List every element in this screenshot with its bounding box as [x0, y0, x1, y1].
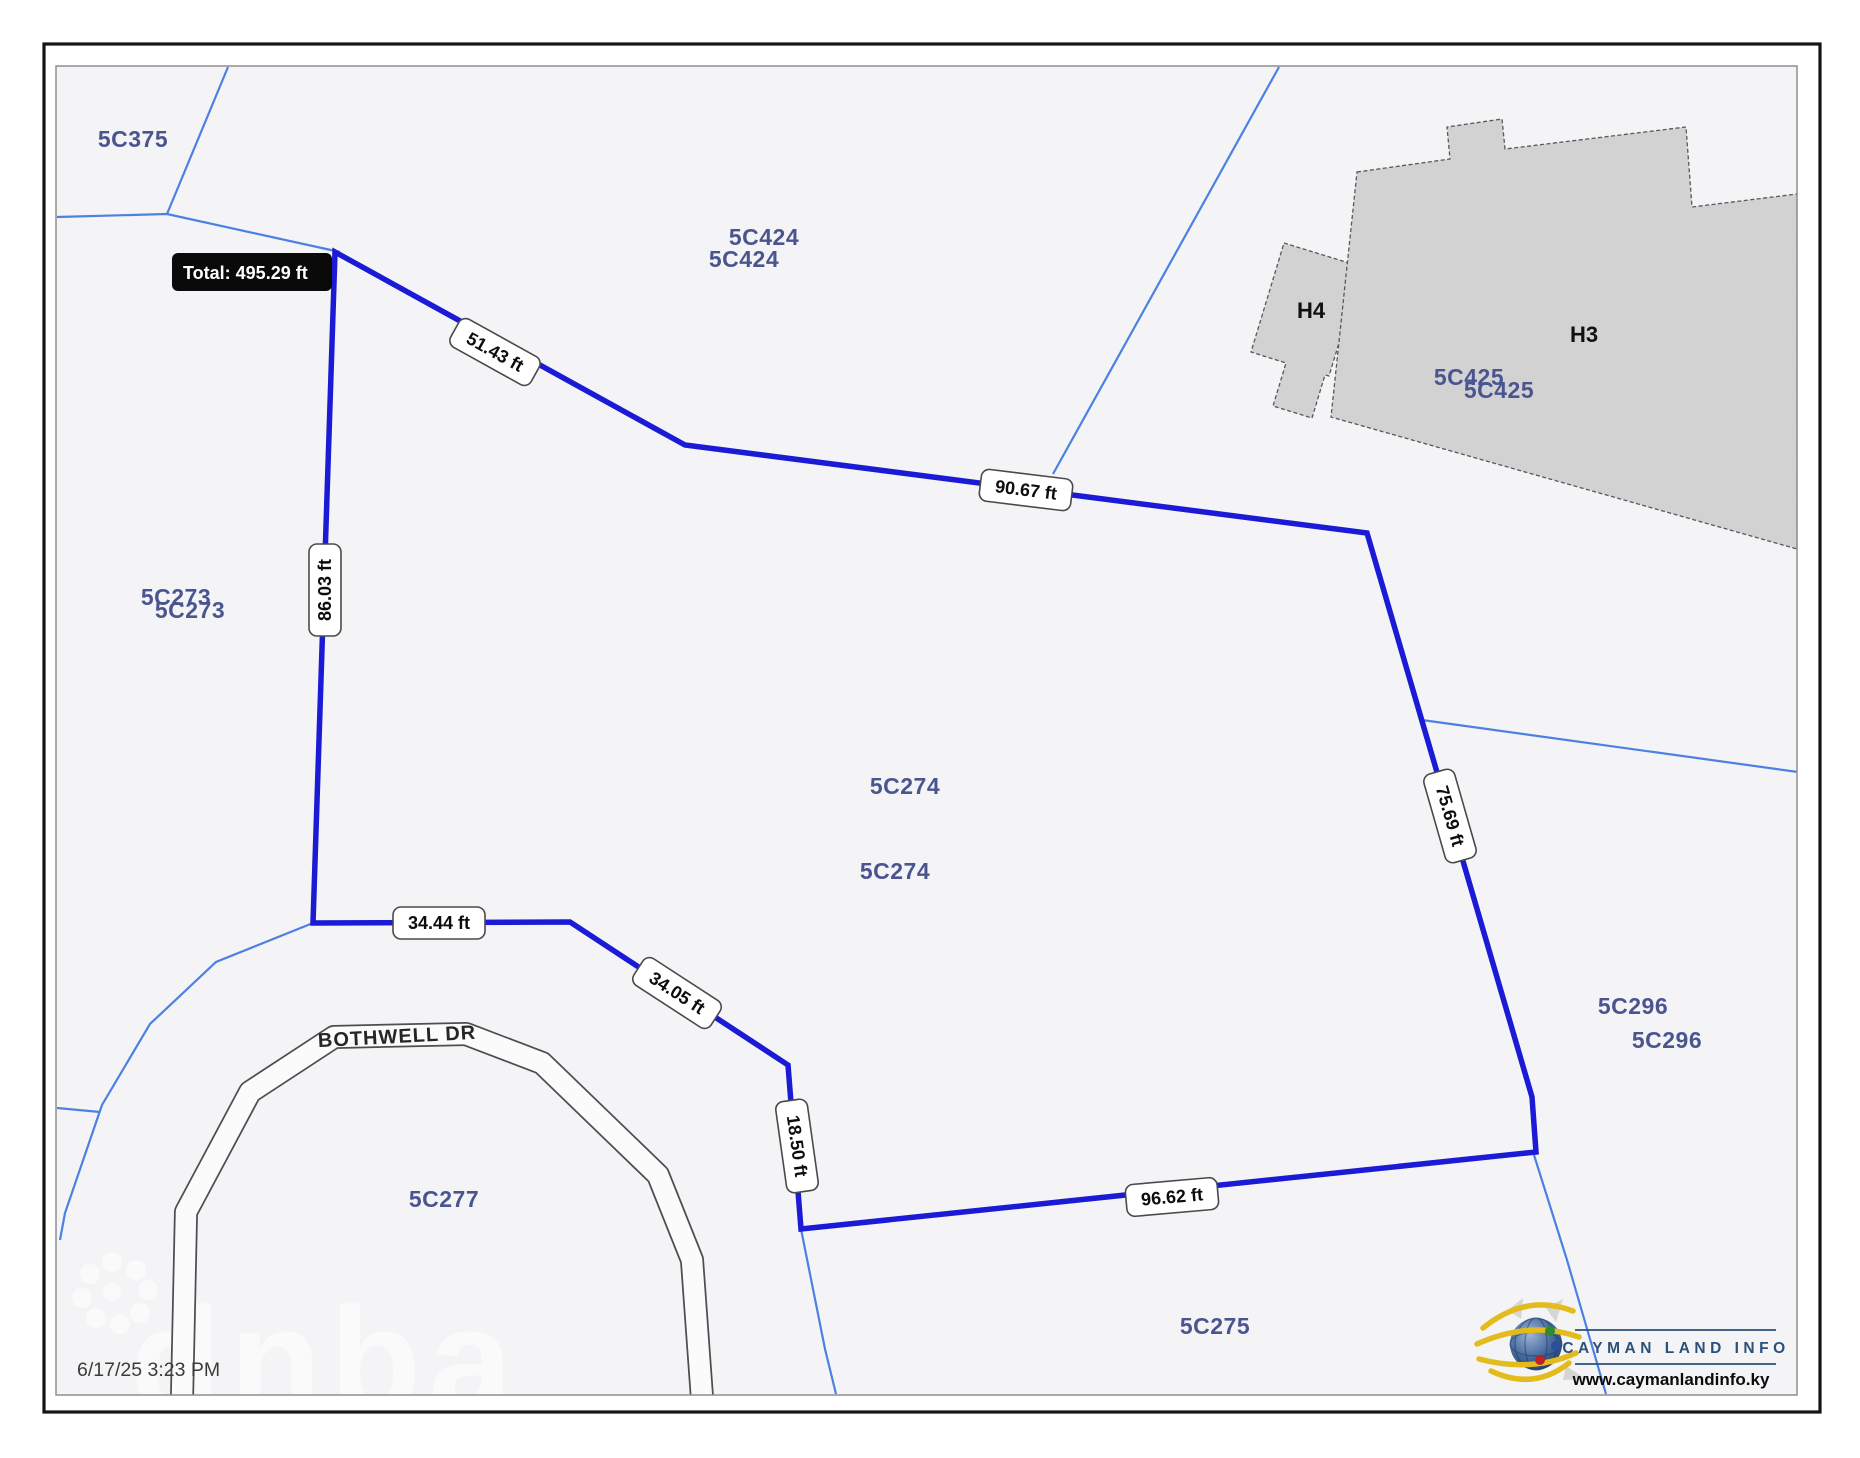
parcel-label-5C375: 5C375: [98, 126, 168, 152]
svg-text:86.03 ft: 86.03 ft: [315, 559, 335, 621]
logo-title: CAYMAN LAND INFO: [1562, 1340, 1789, 1357]
parcel-label-5C277: 5C277: [409, 1186, 479, 1212]
measurement-label: 34.44 ft: [393, 907, 485, 939]
parcel-label-5C296: 5C296: [1598, 993, 1668, 1019]
logo-dot-blue: [1551, 1341, 1561, 1351]
building-label-h4: H4: [1297, 298, 1326, 323]
measurement-label: 96.62 ft: [1125, 1177, 1219, 1217]
map-page: dnba H4 H3 5C375: [0, 0, 1860, 1458]
parcel-label-5C424: 5C424: [709, 246, 779, 272]
watermark: dnba: [72, 1252, 520, 1444]
svg-text:34.44 ft: 34.44 ft: [408, 913, 470, 933]
parcel-label-5C425: 5C425: [1464, 377, 1534, 403]
logo-url: www.caymanlandinfo.ky: [1572, 1370, 1770, 1389]
parcel-label-5C274: 5C274: [860, 858, 930, 884]
map-canvas[interactable]: dnba H4 H3 5C375: [0, 0, 1860, 1458]
parcel-label-5C275: 5C275: [1180, 1313, 1250, 1339]
parcel-label-5C296: 5C296: [1632, 1027, 1702, 1053]
parcel-label-5C273: 5C273: [155, 597, 225, 623]
total-tooltip: Total: 495.29 ft: [172, 253, 332, 291]
logo-dot-red: [1535, 1355, 1545, 1365]
timestamp: 6/17/25 3:23 PM: [77, 1359, 220, 1381]
building-label-h3: H3: [1570, 322, 1598, 347]
measurement-label: 86.03 ft: [309, 544, 341, 636]
logo-dot-green: [1545, 1326, 1555, 1336]
total-tooltip-text: Total: 495.29 ft: [183, 263, 308, 283]
parcel-label-5C274: 5C274: [870, 773, 940, 799]
